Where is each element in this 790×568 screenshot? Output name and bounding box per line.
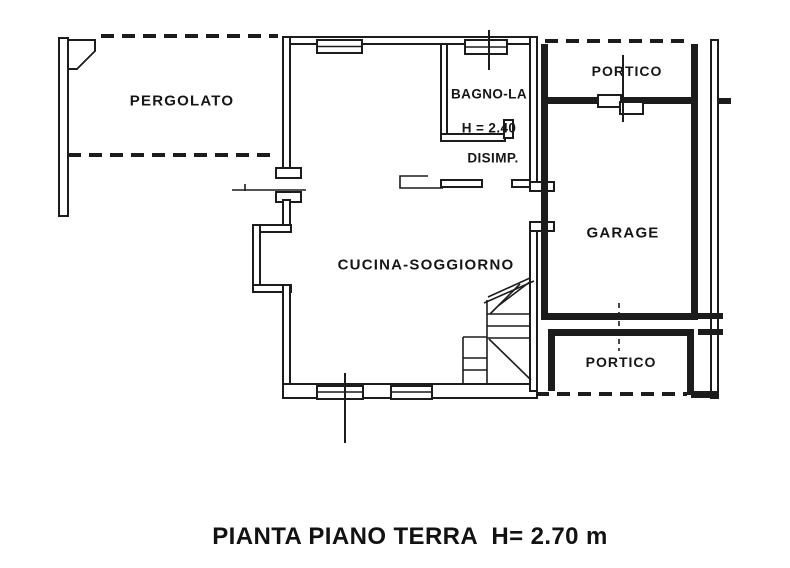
stair-break-line bbox=[489, 339, 531, 380]
portico-bottom-top-wall bbox=[548, 329, 688, 336]
room-label-bagno: BAGNO-LA bbox=[451, 87, 527, 102]
garage-entry-door-leaf bbox=[598, 95, 621, 107]
disimp-bottom-wall bbox=[441, 180, 482, 187]
pergolato-left-wall bbox=[59, 38, 68, 216]
room-label-cucina-soggiorno: CUCINA-SOGGIORNO bbox=[338, 257, 515, 274]
boundary-wall bbox=[711, 40, 718, 398]
plan-caption: PIANTA PIANO TERRA H= 2.70 m bbox=[212, 523, 607, 551]
bagno-left-wall bbox=[441, 44, 447, 140]
bay-left-wall bbox=[253, 225, 260, 292]
garage-portico-structure bbox=[536, 40, 731, 398]
floor-plan-drawing bbox=[0, 0, 790, 568]
house-right-wall-lower bbox=[530, 231, 537, 391]
room-label-garage: GARAGE bbox=[586, 225, 659, 242]
pergolato-corner-pillar bbox=[68, 40, 95, 69]
entry-door-jamb-upper bbox=[276, 168, 301, 178]
room-label-portico-bottom: PORTICO bbox=[586, 354, 657, 370]
room-label-pergolato: PERGOLATO bbox=[130, 93, 234, 110]
boundary-wall-bottom-cap bbox=[691, 391, 718, 398]
house-interior-walls bbox=[400, 44, 530, 188]
house-left-wall-lower bbox=[283, 285, 290, 391]
disimp-bottom-wall-stub bbox=[512, 180, 530, 187]
portico-bottom-right-wall bbox=[687, 329, 694, 395]
house-right-wall-upper bbox=[530, 37, 537, 184]
boundary-wall-stub-mid2 bbox=[698, 329, 723, 335]
room-label-disimpegno: DISIMP. bbox=[467, 151, 518, 166]
room-height-note-bagno: H = 2.40 bbox=[462, 121, 517, 136]
boundary-wall-stub-top bbox=[718, 98, 731, 104]
floor-plan-page: PERGOLATO BAGNO-LA H = 2.40 DISIMP. CUCI… bbox=[0, 0, 790, 568]
boundary-wall-stub-mid1 bbox=[698, 313, 723, 319]
house-left-wall-upper bbox=[283, 37, 290, 168]
room-label-portico-top: PORTICO bbox=[592, 63, 663, 79]
garage-right-wall bbox=[691, 44, 698, 320]
portico-bottom-left-wall bbox=[548, 329, 555, 391]
kitchen-flue-partition bbox=[400, 176, 443, 188]
garage-left-wall bbox=[541, 44, 548, 320]
staircase bbox=[463, 278, 534, 384]
